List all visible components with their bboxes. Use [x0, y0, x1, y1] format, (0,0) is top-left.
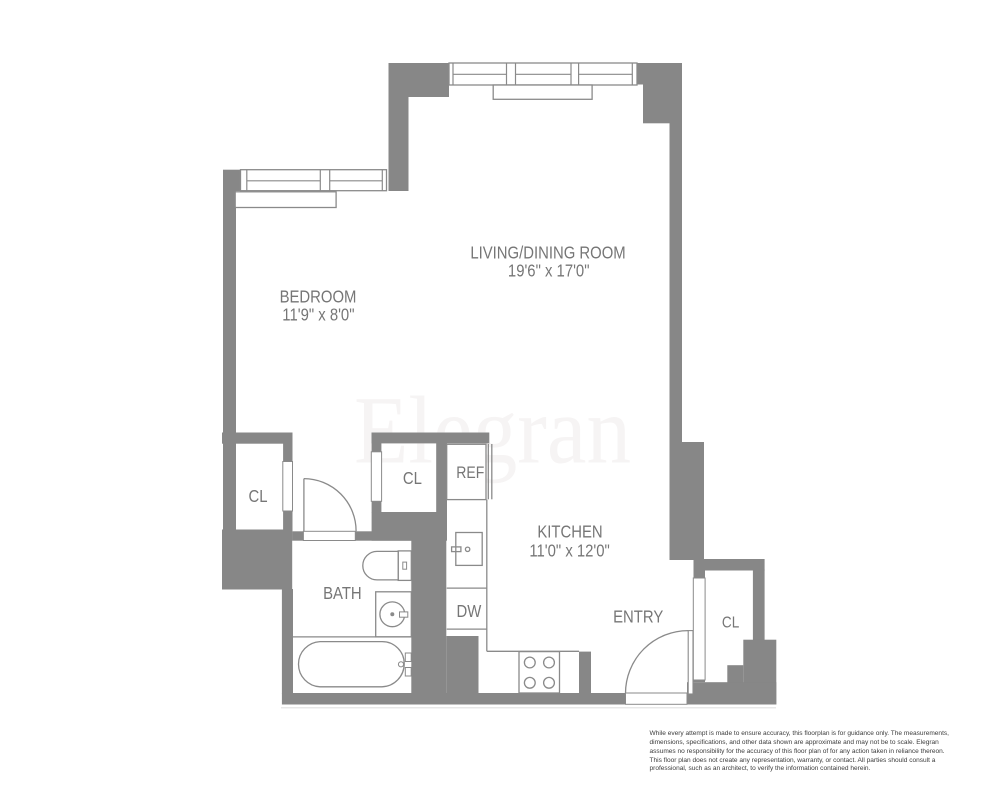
- svg-text:BATH: BATH: [323, 584, 362, 603]
- svg-text:LIVING/DINING ROOM: LIVING/DINING ROOM: [470, 244, 625, 263]
- svg-text:CL: CL: [722, 615, 739, 632]
- svg-text:19'6" x 17'0": 19'6" x 17'0": [508, 262, 590, 281]
- svg-text:REF: REF: [456, 464, 484, 482]
- svg-text:11'9" x 8'0": 11'9" x 8'0": [282, 306, 354, 325]
- svg-text:BEDROOM: BEDROOM: [280, 287, 357, 306]
- svg-text:ENTRY: ENTRY: [613, 607, 663, 626]
- svg-text:DW: DW: [457, 602, 482, 621]
- svg-text:Elegran: Elegran: [354, 377, 631, 484]
- svg-text:CL: CL: [248, 487, 267, 506]
- svg-text:KITCHEN: KITCHEN: [537, 523, 602, 542]
- svg-text:CL: CL: [403, 469, 422, 488]
- svg-text:11'0" x 12'0": 11'0" x 12'0": [529, 541, 610, 560]
